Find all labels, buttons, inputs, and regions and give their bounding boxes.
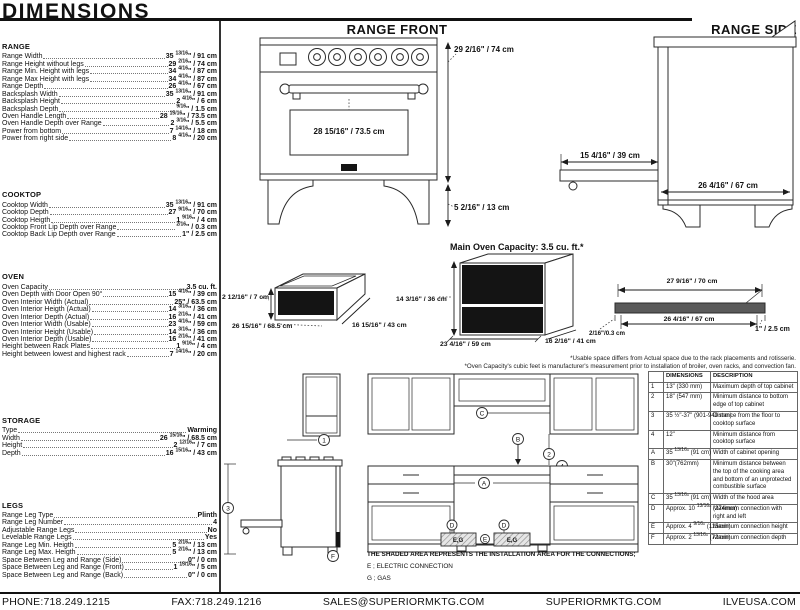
footer-rule	[0, 592, 800, 594]
door-open-depth-label: 15 4/16" / 39 cm	[580, 151, 640, 160]
section-title: RANGE	[2, 42, 217, 51]
back-lip-label: 1" / 2.5 cm	[755, 326, 790, 333]
spec-row: Cooktop Back Lip Depth over Range1" / 2.…	[2, 231, 217, 238]
table-row: C35 13/16" (91 cm)Width of the hood area	[649, 494, 798, 505]
drawer-height-label: 2 12/16" / 7 cm	[222, 294, 269, 301]
spec-sheet-page: DIMENSIONS RANGE FRONT RANGE SIDE Main O…	[0, 0, 800, 610]
column-divider	[219, 21, 221, 594]
cooktop-profile-drawing: 27 9/16" / 70 cm 26 4/16" / 67 cm 2/16"/…	[588, 270, 800, 344]
spec-row: Power from right side8 4/16" / 20 cm	[2, 135, 217, 142]
legend-gas: G ; GAS	[367, 575, 453, 582]
drawer-width-label: 26 15/16" / 68.5 cm	[232, 323, 292, 330]
spec-row: Backsplash Depth9/16" / 1.5 cm	[2, 105, 217, 112]
section-cooktop: COOKTOPCooktop Width35 13/16" / 91 cmCoo…	[2, 190, 217, 238]
table-row: 412"Minimum distance from cooktop surfac…	[649, 430, 798, 449]
legend-electric: E ; ELECTRIC CONNECTION	[367, 563, 453, 570]
table-row: DApprox. 10 13/16" (274mm)Maximum connec…	[649, 504, 798, 523]
range-height-label: 29 2/16" / 74 cm	[454, 45, 514, 54]
spec-row: Range Leg Number4	[2, 519, 217, 526]
section-title: COOKTOP	[2, 190, 217, 199]
marker-d: D	[502, 523, 507, 530]
display-icon	[280, 53, 296, 65]
marker-c: C	[480, 411, 485, 418]
footer-phone: PHONE:718.249.1215	[2, 596, 110, 608]
logo-badge-icon	[341, 164, 357, 171]
footnote-usable-space: *Usable space differs from Actual space …	[465, 355, 797, 363]
table-row: 218" (547 mm)Minimum distance to bottom …	[649, 393, 798, 412]
spec-sections: RANGERange Width35 13/16" / 91 cmRange H…	[2, 38, 217, 579]
footnotes: *Usable space differs from Actual space …	[465, 355, 797, 372]
spec-row: Space Between Leg and Range (Front)1 15/…	[2, 564, 217, 571]
marker-b: B	[516, 437, 520, 444]
spec-row: Oven Depth with Door Open 90°15 4/16" / …	[2, 291, 217, 298]
connection-zone-label: E,G	[453, 538, 464, 544]
cooktop-top-width-label: 27 9/16" / 70 cm	[667, 278, 718, 285]
front-lip-label: 2/16"/0.3 cm	[589, 330, 625, 337]
range-side-drawing: 15 4/16" / 39 cm 26 4/16" / 67 cm	[548, 20, 800, 232]
spec-row: Space Between Leg and Range (Back)0" / 0…	[2, 571, 217, 578]
section-title: LEGS	[2, 501, 217, 510]
section-storage: STORAGETypeWarmingWidth26 15/16" / 68.5 …	[2, 416, 217, 457]
table-row: B30"(762mm)Minimum distance between the …	[649, 459, 798, 493]
install-front-drawing: C B 2 4 A D	[363, 372, 647, 562]
range-leg-icon	[268, 180, 313, 224]
range-leg-icon	[663, 205, 700, 227]
range-leg-icon	[755, 205, 792, 227]
spec-row: Depth16 15/16" / 43 cm	[2, 449, 217, 456]
marker-1: 1	[322, 438, 326, 445]
open-door-icon	[560, 170, 658, 181]
section-range: RANGERange Width35 13/16" / 91 cmRange H…	[2, 42, 217, 142]
marker-a: A	[482, 481, 487, 488]
table-row: 335 ½"-37" (901-940 mm)Distance from the…	[649, 411, 798, 430]
table-row: 113" (330 mm)Maximum depth of top cabine…	[649, 382, 798, 393]
spec-row: TypeWarming	[2, 427, 217, 434]
section-title: OVEN	[2, 272, 217, 281]
connection-zone-label: E,G	[507, 538, 518, 544]
section-legs: LEGSRange Leg TypePlinthRange Leg Number…	[2, 501, 217, 579]
footer: PHONE:718.249.1215 FAX:718.249.1216 SALE…	[2, 596, 796, 608]
section-title: STORAGE	[2, 416, 217, 425]
table-row: A35 13/16" (91 cm)Width of cabinet openi…	[649, 449, 798, 460]
install-note: THE SHADED AREA REPRESENTS THE INSTALLAT…	[367, 551, 647, 558]
oven-shelf-line	[462, 304, 543, 307]
footer-brand-site: ILVEUSA.COM	[723, 596, 796, 608]
spec-row: Range Leg TypePlinth	[2, 512, 217, 519]
door-caster-icon	[569, 182, 577, 190]
cooktop-bottom-width-label: 26 4/16" / 67 cm	[664, 316, 715, 323]
oven-capacity-heading: Main Oven Capacity: 3.5 cu. ft.*	[450, 242, 584, 252]
leg-height-label: 5 2/16" / 13 cm	[454, 203, 509, 212]
install-side-drawing: 1 3 F	[222, 372, 349, 562]
marker-3: 3	[226, 506, 230, 513]
connection-legend: E ; ELECTRIC CONNECTION G ; GAS	[367, 563, 453, 587]
section-oven: OVENOven Capacity3.5 cu. ft.Oven Depth w…	[2, 272, 217, 357]
oven-interior-drawing: 14 3/16" / 36 cm 23 4/16" / 59 cm 16 2/1…	[395, 253, 605, 353]
spec-row: Cooktop Front Lip Depth over Range2/16" …	[2, 224, 217, 231]
table-row: FApprox. 2 13/16" (72mm)Maximum connecti…	[649, 534, 798, 545]
spec-row: Adjustable Range LegsNo	[2, 526, 217, 533]
dimensions-table: DIMENSIONSDESCRIPTION113" (330 mm)Maximu…	[648, 371, 798, 545]
spec-row: Height between lowest and highest rack7 …	[2, 350, 217, 357]
marker-f: F	[331, 554, 335, 561]
spec-row: Range Leg Max. Heigth5 2/16" / 13 cm	[2, 549, 217, 556]
marker-d: D	[450, 523, 455, 530]
marker-2: 2	[547, 452, 551, 459]
range-leg-icon	[384, 180, 429, 224]
range-depth-label: 26 4/16" / 67 cm	[698, 181, 758, 190]
marker-e: E	[483, 537, 488, 544]
oven-width-label: 23 4/16" / 59 cm	[440, 341, 491, 348]
range-front-drawing: 28 15/16" / 73.5 cm 29 2/16" / 74 cm 5 2…	[256, 34, 538, 232]
backsplash-icon	[772, 21, 795, 37]
footer-fax: FAX:718.249.1216	[171, 596, 261, 608]
footer-website: SUPERIORMKTG.COM	[546, 596, 662, 608]
handle-length-label: 28 15/16" / 73.5 cm	[314, 127, 385, 136]
table-row: EApprox. 4 9/16" (115mm)Maximum connecti…	[649, 523, 798, 534]
footer-email: SALES@SUPERIORMKTG.COM	[323, 596, 485, 608]
door-caster-icon	[243, 528, 249, 534]
cooktop-section-bar	[615, 303, 765, 313]
